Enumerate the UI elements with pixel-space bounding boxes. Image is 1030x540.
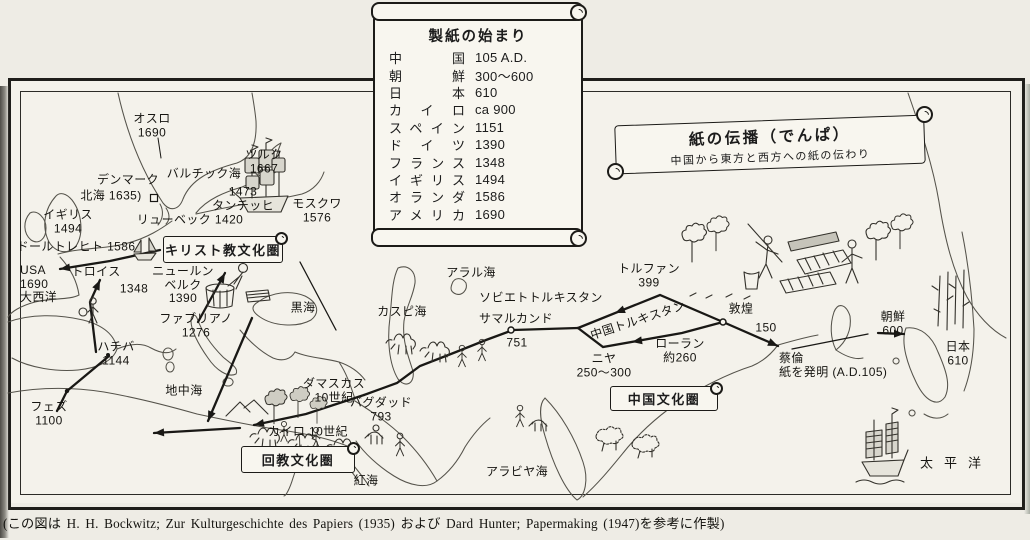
place-cell: フランス bbox=[389, 153, 465, 172]
papermaking-map-figure: { "page": { "caption": "(この図は H. H. Bock… bbox=[0, 0, 1030, 540]
start-table-row: スペイン1151 bbox=[389, 119, 569, 136]
culture-banner-label: 中国文化圏 bbox=[628, 389, 701, 408]
culture-banner-label: 回教文化圏 bbox=[262, 450, 335, 469]
place-cell: イギリス bbox=[389, 170, 465, 189]
start-table-row: 日本610 bbox=[389, 84, 569, 101]
date-cell: 1390 bbox=[475, 137, 505, 152]
date-cell: 105 A.D. bbox=[475, 50, 527, 65]
book-gutter-shadow bbox=[0, 86, 9, 538]
ribbon-curl-icon bbox=[607, 163, 624, 180]
title-banner: 紙の伝播（でんぱ） 中国から東方と西方への紙の伝わり bbox=[605, 104, 935, 178]
start-table-row: ドイツ1390 bbox=[389, 136, 569, 153]
date-cell: 1494 bbox=[475, 172, 505, 187]
date-cell: 1151 bbox=[475, 120, 504, 135]
scroll-curl-icon bbox=[570, 230, 587, 247]
start-table-row: アメリカ1690 bbox=[389, 206, 569, 223]
scroll-body: 製紙の始まり 中国105 A.D.朝鮮300～600日本610カイロca 900… bbox=[373, 10, 583, 240]
start-table-row: イギリス1494 bbox=[389, 171, 569, 188]
date-cell: 610 bbox=[475, 85, 498, 100]
date-cell: 1690 bbox=[475, 207, 505, 222]
place-cell: スペイン bbox=[389, 118, 465, 137]
place-cell: カイロ bbox=[389, 100, 465, 119]
start-table-row: カイロca 900 bbox=[389, 101, 569, 118]
culture-banner-label: キリスト教文化圏 bbox=[165, 240, 281, 259]
start-table-row: オランダ1586 bbox=[389, 188, 569, 205]
place-cell: 中国 bbox=[389, 48, 465, 67]
place-cell: オランダ bbox=[389, 187, 465, 206]
date-cell: 1348 bbox=[475, 155, 505, 170]
scroll-curl-icon bbox=[710, 382, 723, 395]
scroll-top-band bbox=[371, 2, 584, 21]
place-cell: 朝鮮 bbox=[389, 66, 465, 85]
ribbon-curl-icon bbox=[916, 106, 933, 123]
date-cell: 1586 bbox=[475, 189, 505, 204]
map-title: 紙の伝播（でんぱ） bbox=[688, 122, 851, 150]
place-cell: アメリカ bbox=[389, 205, 465, 224]
figure-caption: (この図は H. H. Bockwitz; Zur Kulturgeschich… bbox=[3, 513, 1028, 532]
start-table-title: 製紙の始まり bbox=[375, 25, 581, 46]
scroll-curl-icon bbox=[570, 4, 587, 21]
culture-banner: キリスト教文化圏 bbox=[163, 236, 283, 263]
place-cell: 日本 bbox=[389, 83, 465, 102]
culture-banner: 中国文化圏 bbox=[610, 386, 718, 411]
scan-edge-shadow bbox=[1024, 84, 1030, 514]
scroll-bottom-band bbox=[371, 228, 584, 247]
date-cell: 300～600 bbox=[475, 66, 533, 85]
start-table-row: 朝鮮300～600 bbox=[389, 66, 569, 83]
start-table-row: 中国105 A.D. bbox=[389, 49, 569, 66]
date-cell: ca 900 bbox=[475, 102, 516, 117]
place-cell: ドイツ bbox=[389, 135, 465, 154]
title-ribbon: 紙の伝播（でんぱ） 中国から東方と西方への紙の伝わり bbox=[614, 115, 926, 175]
scroll-curl-icon bbox=[347, 442, 360, 455]
papermaking-start-table: 製紙の始まり 中国105 A.D.朝鮮300～600日本610カイロca 900… bbox=[373, 2, 583, 247]
scroll-curl-icon bbox=[275, 232, 288, 245]
culture-banner: 回教文化圏 bbox=[241, 446, 355, 473]
start-table-rows: 中国105 A.D.朝鮮300～600日本610カイロca 900スペイン115… bbox=[375, 46, 581, 223]
start-table-row: フランス1348 bbox=[389, 153, 569, 170]
